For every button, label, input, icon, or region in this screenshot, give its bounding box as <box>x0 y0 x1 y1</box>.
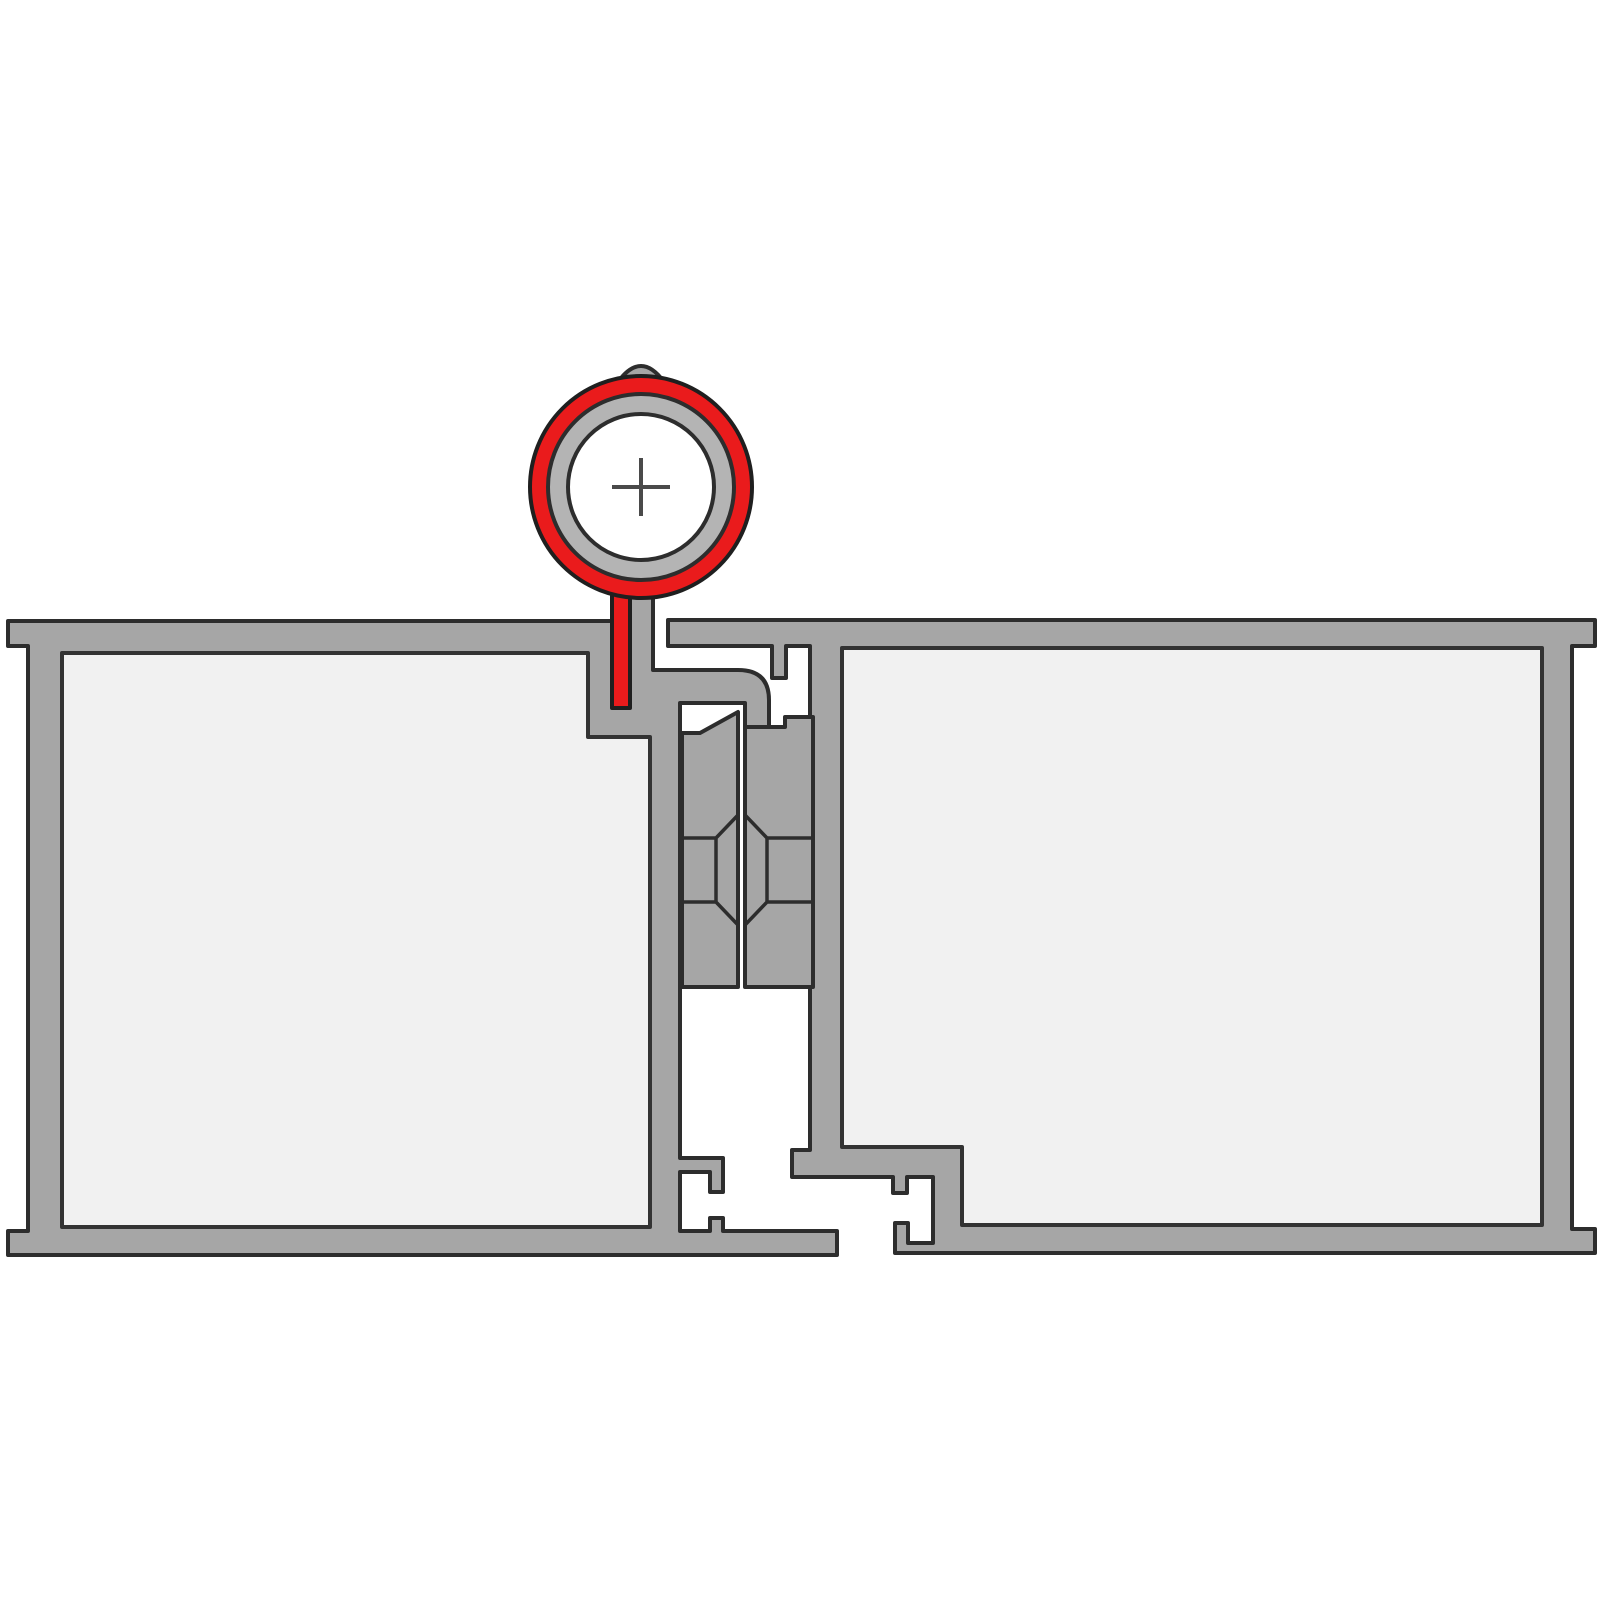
right-coupling-insert <box>745 717 813 987</box>
right-glazing-panel <box>842 648 1542 1225</box>
diagram-canvas <box>0 0 1600 1600</box>
left-coupling-insert <box>682 712 738 987</box>
profile-cross-section-drawing <box>0 0 1600 1600</box>
left-glazing-panel <box>62 653 650 1227</box>
gasket-stem <box>612 585 630 708</box>
